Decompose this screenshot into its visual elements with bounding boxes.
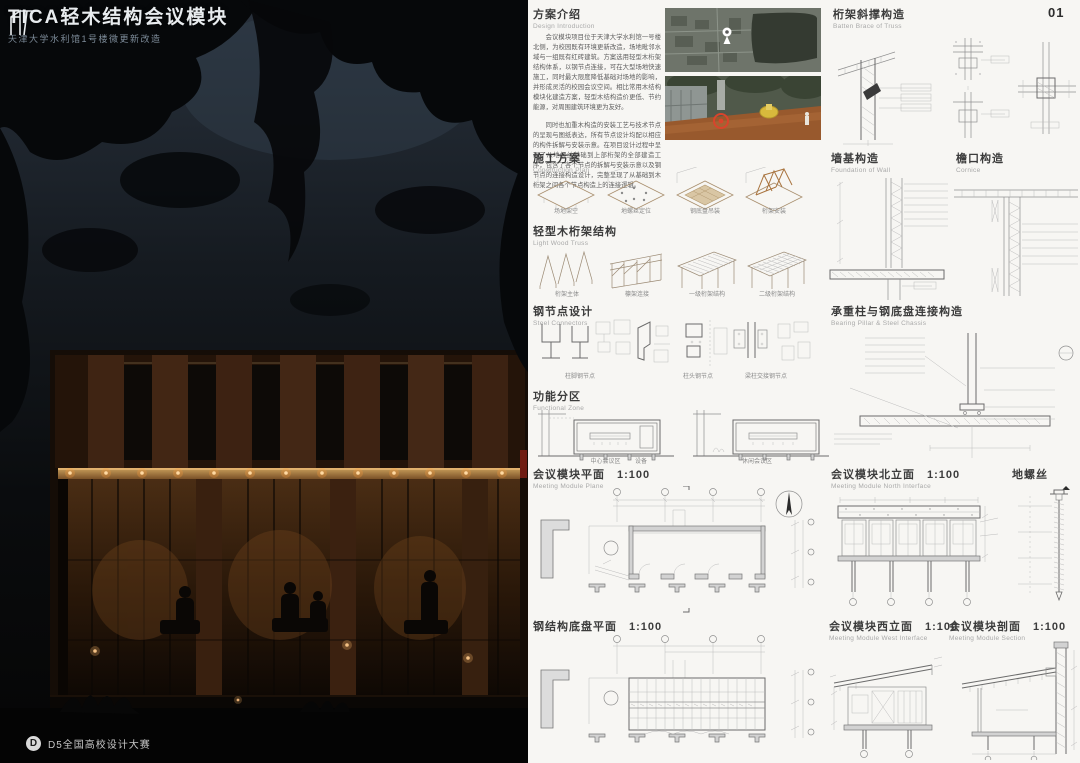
- drawing-sheet: 01 方案介绍 Design Introduction 会议模块项目位于天津大学…: [528, 0, 1080, 763]
- section-wall-foundation-header: 墙基构造 Foundation of Wall: [831, 150, 890, 174]
- functional-zone-label: 中心会议区: [583, 456, 628, 465]
- chassis-plan-title: 钢结构底盘平面1:100: [533, 618, 662, 634]
- site-satellite-map: [665, 8, 821, 72]
- functional-zone-diagram-2: [691, 404, 831, 462]
- north-compass-icon: [776, 491, 802, 517]
- west-elev-subtitle: Meeting Module West Interface: [829, 635, 958, 642]
- ground-screw-title: 地螺丝: [1012, 466, 1048, 482]
- ground-screw-drawing: [1010, 484, 1080, 606]
- chassis-plan-scale: 1:100: [629, 621, 662, 633]
- pillar-chassis-title: 承重柱与钢底盘连接构造: [831, 303, 963, 319]
- section-pillar-chassis-header: 承重柱与钢底盘连接构造 Bearing Pillar & Steel Chass…: [831, 303, 963, 327]
- truss-step-3-diagram: [674, 244, 740, 290]
- construction-step-label: 钢底盘吊装: [673, 206, 737, 215]
- truss-step-2-diagram: [604, 244, 670, 290]
- section-title: 会议模块剖面1:100: [949, 618, 1066, 634]
- meeting-module-plan-drawing: [533, 486, 821, 614]
- section-drawing: [948, 640, 1080, 760]
- construction-step-3-diagram: [673, 167, 737, 211]
- section-section-header: 会议模块剖面1:100 Meeting Module Section: [949, 618, 1066, 642]
- functional-zone-diagram-1: [536, 404, 676, 462]
- construction-step-label: 场地架空: [534, 206, 598, 215]
- steel-node-label: 柱脚钢节点: [540, 371, 620, 380]
- competition-name: D5全国高校设计大赛: [48, 736, 151, 751]
- intro-subtitle: Design Introduction: [533, 23, 595, 30]
- d5-logo-icon: D: [26, 736, 41, 751]
- construction-step-label: 地螺丝定位: [604, 206, 668, 215]
- truss-brace-details: [833, 30, 1078, 148]
- plan-title: 会议模块平面1:100: [533, 466, 650, 482]
- night-render-photo: TICA轻木结构会议模块 天津大学水利馆1号楼微更新改造 D D5全国高校设计大…: [0, 0, 528, 763]
- pillar-chassis-subtitle: Bearing Pillar & Steel Chassis: [831, 320, 963, 327]
- truss-brace-title: 桁架斜撑构造: [833, 6, 905, 22]
- construction-step-4-diagram: [742, 167, 806, 211]
- west-elevation-drawing: [826, 645, 946, 760]
- west-elev-title: 会议模块西立面1:100: [829, 618, 958, 634]
- page-number: 01: [1048, 5, 1064, 20]
- functional-zone-label: 休闲会议区: [733, 456, 781, 465]
- cornice-detail: [952, 172, 1080, 302]
- presentation-board: TICA轻木结构会议模块 天津大学水利馆1号楼微更新改造 D D5全国高校设计大…: [0, 0, 1080, 763]
- section-west-elev-header: 会议模块西立面1:100 Meeting Module West Interfa…: [829, 618, 958, 642]
- red-sign: [520, 450, 527, 478]
- steel-nodes-title: 钢节点设计: [533, 303, 593, 319]
- tica-logo-icon: [8, 8, 42, 38]
- truss-step-label: 桁架主体: [534, 289, 600, 298]
- person-figure: [805, 112, 809, 125]
- truss-step-label: 檩架连接: [604, 289, 670, 298]
- night-render-illustration: [0, 0, 528, 763]
- section-north-elev-header: 会议模块北立面1:100 Meeting Module North Interf…: [831, 466, 960, 490]
- construction-step-1-diagram: [534, 167, 598, 211]
- steel-node-diagrams: [534, 318, 814, 370]
- steel-node-label: 梁柱交接钢节点: [716, 371, 816, 380]
- construction-step-2-diagram: [604, 167, 668, 211]
- north-elev-title: 会议模块北立面1:100: [831, 466, 960, 482]
- truss-title: 轻型木桁架结构: [533, 223, 617, 239]
- construction-title: 施工方案: [533, 150, 589, 166]
- truss-step-4-diagram: [744, 244, 810, 290]
- section-cornice-header: 檐口构造 Cornice: [956, 150, 1004, 174]
- truss-step-label: 一级桁架结构: [674, 289, 740, 298]
- north-elevation-drawing: [830, 492, 1002, 610]
- truss-brace-subtitle: Batten Brace of Truss: [833, 23, 905, 30]
- section-scale: 1:100: [1033, 621, 1066, 633]
- section-ground-screw-header: 地螺丝: [1012, 466, 1048, 482]
- cornice-title: 檐口构造: [956, 150, 1004, 166]
- truss-step-label: 二级桁架结构: [744, 289, 810, 298]
- intro-title: 方案介绍: [533, 6, 595, 22]
- plan-scale: 1:100: [617, 469, 650, 481]
- intro-paragraph-1: 会议模块项目位于天津大学水利馆一号楼北侧，为校园既有环境更新改造，场地毗邻水域与…: [533, 33, 661, 114]
- section-chassis-plan-header: 钢结构底盘平面1:100: [533, 618, 662, 634]
- wall-foundation-detail: [828, 172, 950, 302]
- truss-step-1-diagram: [534, 244, 600, 290]
- north-elev-subtitle: Meeting Module North Interface: [831, 483, 960, 490]
- section-intro-header: 方案介绍 Design Introduction: [533, 6, 595, 30]
- functional-title: 功能分区: [533, 388, 584, 404]
- functional-zone-label: 设备: [630, 456, 652, 465]
- site-photo: [665, 76, 821, 140]
- pillar-chassis-detail: [830, 328, 1080, 463]
- section-truss-brace-header: 桁架斜撑构造 Batten Brace of Truss: [833, 6, 905, 30]
- north-elev-scale: 1:100: [927, 469, 960, 481]
- chassis-plan-drawing: [533, 634, 821, 760]
- construction-step-label: 桁架安装: [742, 206, 806, 215]
- wall-foundation-title: 墙基构造: [831, 150, 890, 166]
